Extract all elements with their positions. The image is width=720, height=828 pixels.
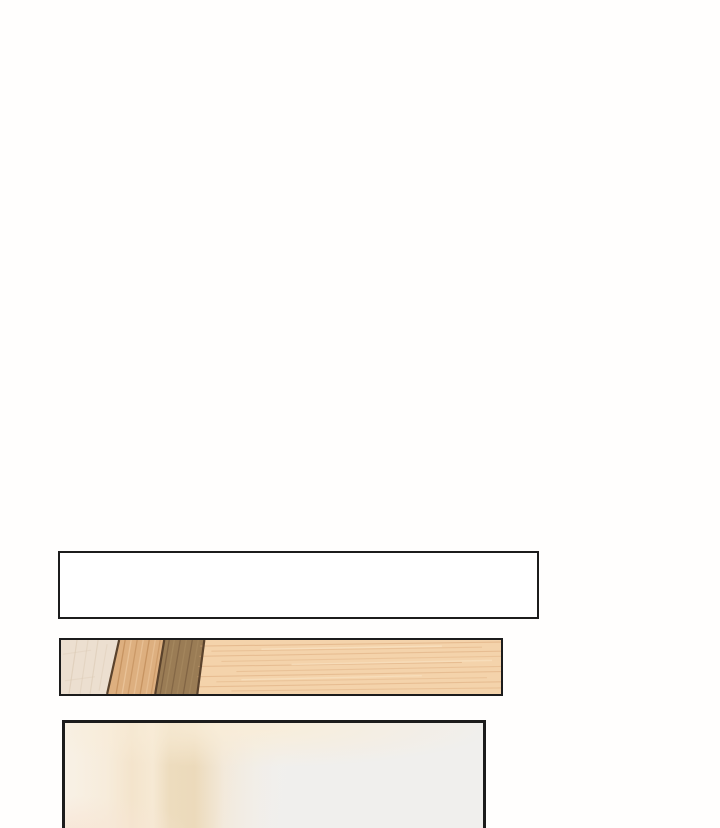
empty-caption-panel xyxy=(58,551,539,619)
blurred-room-panel xyxy=(62,720,486,828)
wood-grain-illustration xyxy=(61,640,501,694)
wood-table-edge-panel xyxy=(59,638,503,696)
webtoon-page xyxy=(0,0,720,828)
